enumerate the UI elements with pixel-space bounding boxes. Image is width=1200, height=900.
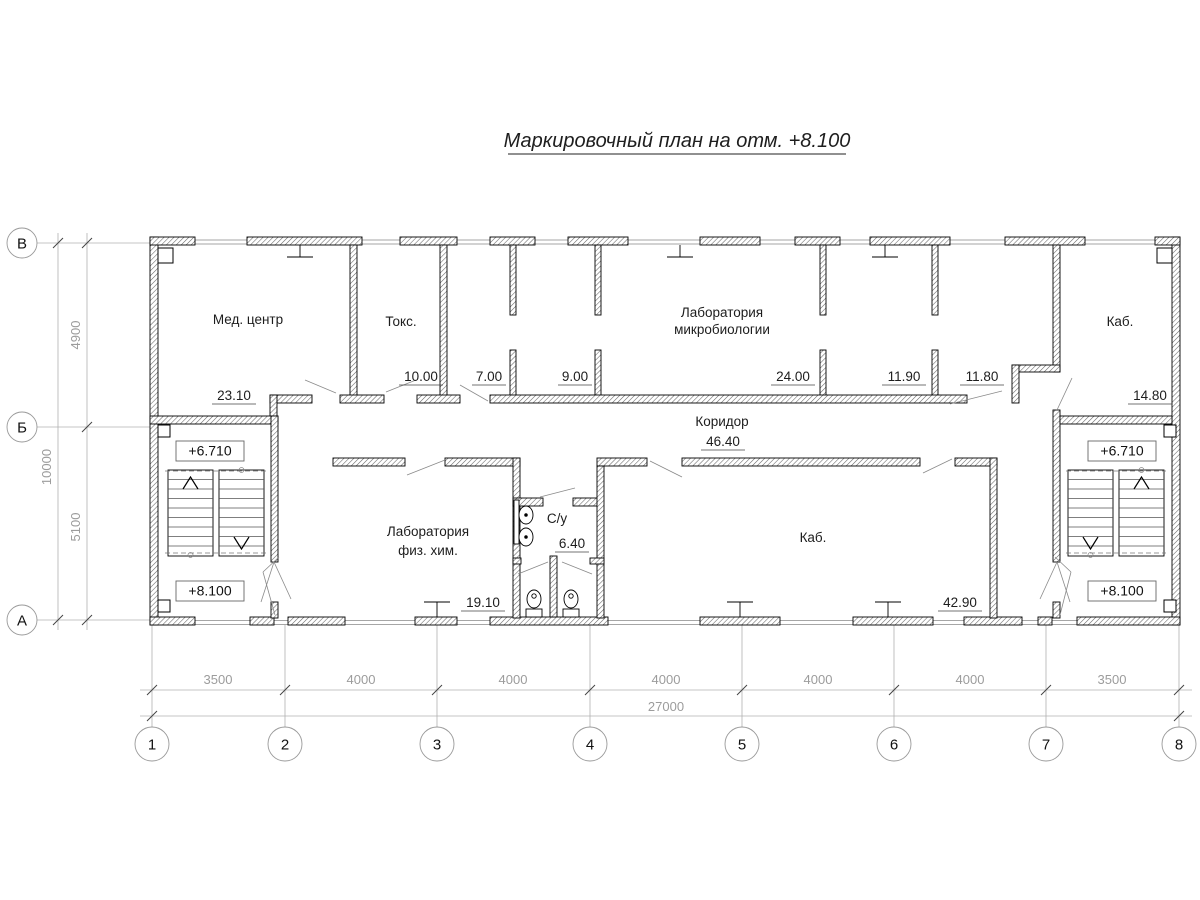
toilet-tank: [563, 609, 579, 617]
corner-columns: [158, 248, 1176, 612]
dim-bottom-4: 4000: [804, 672, 833, 687]
area-underlines: [212, 385, 1172, 611]
elevation-upper-left: +6.710: [188, 443, 231, 459]
axis-col-5: 5: [738, 737, 746, 754]
door-swing-lines: [261, 378, 1072, 615]
axis-col-3: 3: [433, 737, 441, 754]
axis-row-b: Б: [17, 420, 27, 437]
stair-flight: [1068, 470, 1113, 556]
room-wc-area: 6.40: [559, 536, 585, 551]
axis-col-7: 7: [1042, 737, 1050, 754]
room-7-area: 7.00: [476, 369, 502, 384]
axis-col-2: 2: [281, 737, 289, 754]
walls: [150, 237, 1180, 625]
room-physlab-area: 19.10: [466, 595, 500, 610]
stair-flight: [1119, 470, 1164, 556]
stair-flight: [219, 470, 264, 556]
dim-bottom-6: 3500: [1098, 672, 1127, 687]
dim-bottom-2: 4000: [499, 672, 528, 687]
room-1180-area: 11.80: [966, 369, 999, 384]
stairs-right: [1066, 468, 1166, 558]
dim-bottom-5: 4000: [956, 672, 985, 687]
wc-stall-wall: [550, 556, 557, 617]
room-toks-area: 10.00: [404, 369, 438, 384]
axis-row-v: В: [17, 236, 27, 253]
room-microlab-label-1: Лаборатория: [681, 305, 763, 320]
room-kabright-label: Каб.: [1107, 314, 1134, 329]
room-kabmain-label: Каб.: [800, 530, 827, 545]
dim-bottom-3: 4000: [652, 672, 681, 687]
room-wc-label: С/у: [547, 511, 568, 526]
axis-col-1: 1: [148, 737, 156, 754]
room-9-area: 9.00: [562, 369, 588, 384]
room-toks-label: Токс.: [385, 314, 416, 329]
toilet: [564, 590, 578, 608]
room-medcenter-label: Мед. центр: [213, 312, 283, 327]
axis-col-4: 4: [586, 737, 594, 754]
elevation-lower-left: +8.100: [188, 583, 231, 599]
room-kabright-area: 14.80: [1133, 388, 1167, 403]
elevation-upper-right: +6.710: [1100, 443, 1143, 459]
dim-left-total: 10000: [39, 449, 54, 485]
dim-left-1: 5100: [68, 513, 83, 542]
room-microlab-label-2: микробиологии: [674, 322, 770, 337]
room-corridor-area: 46.40: [706, 434, 740, 449]
room-microlab-area: 24.00: [776, 369, 810, 384]
room-1190-area: 11.90: [888, 369, 921, 384]
drawing-title: Маркировочный план на отм. +8.100: [504, 130, 851, 152]
axis-col-8: 8: [1175, 737, 1183, 754]
elevation-marks: +6.710 +8.100 +6.710 +8.100: [176, 441, 1156, 601]
dim-left-0: 4900: [68, 321, 83, 350]
dim-bottom-total: 27000: [648, 699, 684, 714]
room-kabmain-area: 42.90: [943, 595, 977, 610]
room-physlab-label-1: Лаборатория: [387, 524, 469, 539]
room-medcenter-area: 23.10: [217, 388, 251, 403]
dim-bottom-0: 3500: [204, 672, 233, 687]
axis-col-6: 6: [890, 737, 898, 754]
drawing-sheet: Маркировочный план на отм. +8.100 3500 4…: [0, 0, 1200, 900]
stair-flight: [168, 470, 213, 556]
floor-plan: Маркировочный план на отм. +8.100 3500 4…: [0, 0, 1200, 900]
axis-row-a: А: [17, 613, 27, 630]
toilet: [527, 590, 541, 608]
sink-counter: [514, 500, 519, 544]
room-corridor-label: Коридор: [695, 414, 748, 429]
stairs-left: [165, 468, 267, 558]
elevation-lower-right: +8.100: [1100, 583, 1143, 599]
window-lines: [158, 240, 1172, 625]
dim-bottom-1: 4000: [347, 672, 376, 687]
room-physlab-label-2: физ. хим.: [398, 543, 458, 558]
toilet-tank: [526, 609, 542, 617]
